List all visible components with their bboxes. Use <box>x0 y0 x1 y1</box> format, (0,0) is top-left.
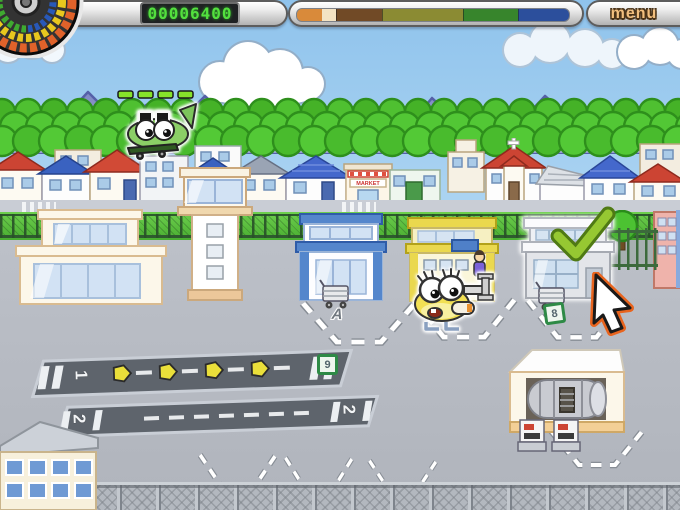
mouse-cursor-icon <box>588 272 648 338</box>
menu-button[interactable]: menu <box>586 0 680 27</box>
checkmark-icon <box>546 206 616 264</box>
progress-segment <box>518 9 569 21</box>
gate-number-sign: 8 <box>543 302 567 326</box>
runway-1-number: 1 <box>71 370 91 380</box>
score-value: 00006400 <box>147 4 232 23</box>
corner-building <box>0 420 100 510</box>
progress-bar <box>296 8 570 22</box>
perimeter-fence <box>0 482 680 510</box>
progress-segment <box>322 9 336 21</box>
market-sign: MARKET <box>356 181 380 187</box>
town-skyline: MARKET <box>0 138 680 204</box>
terminal-left[interactable] <box>14 208 168 308</box>
plane-character[interactable] <box>112 100 208 164</box>
service-units <box>516 416 586 460</box>
menu-button-label: menu <box>611 5 658 23</box>
luggage-cart <box>318 278 354 314</box>
game-viewport: MARKET <box>0 0 680 510</box>
progress-segment <box>382 9 462 21</box>
score-display: 00006400 <box>140 2 240 25</box>
runway-2-number-right: 2 <box>338 404 358 414</box>
helicopter-character[interactable] <box>408 264 504 336</box>
runway-number-sign: 9 <box>317 354 338 375</box>
progress-segment <box>297 9 322 21</box>
timer-dial <box>0 0 84 58</box>
progress-segment <box>336 9 383 21</box>
control-tower <box>174 166 256 306</box>
cloud <box>608 26 680 74</box>
progress-segment <box>463 9 519 21</box>
